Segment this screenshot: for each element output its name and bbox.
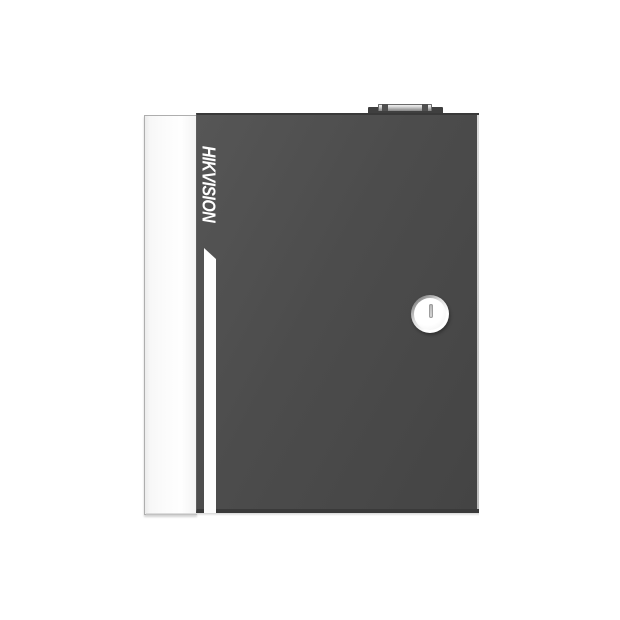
key-lock-cylinder [411,295,449,333]
access-controller-enclosure: HIKVISION [144,104,479,513]
hinge-nub-left [382,104,388,111]
brand-accent-stripe [204,248,216,514]
brand-logo: HIKVISION [200,140,218,229]
keyhole-icon [429,304,433,318]
lock-face [414,298,446,330]
hinge-nub-right [422,104,428,111]
product-photo-stage: HIKVISION [0,0,620,620]
hinge-knob-icon [378,104,432,111]
drop-shadow [146,513,479,516]
enclosure-side-panel [144,115,197,515]
enclosure-front-door: HIKVISION [196,113,479,513]
